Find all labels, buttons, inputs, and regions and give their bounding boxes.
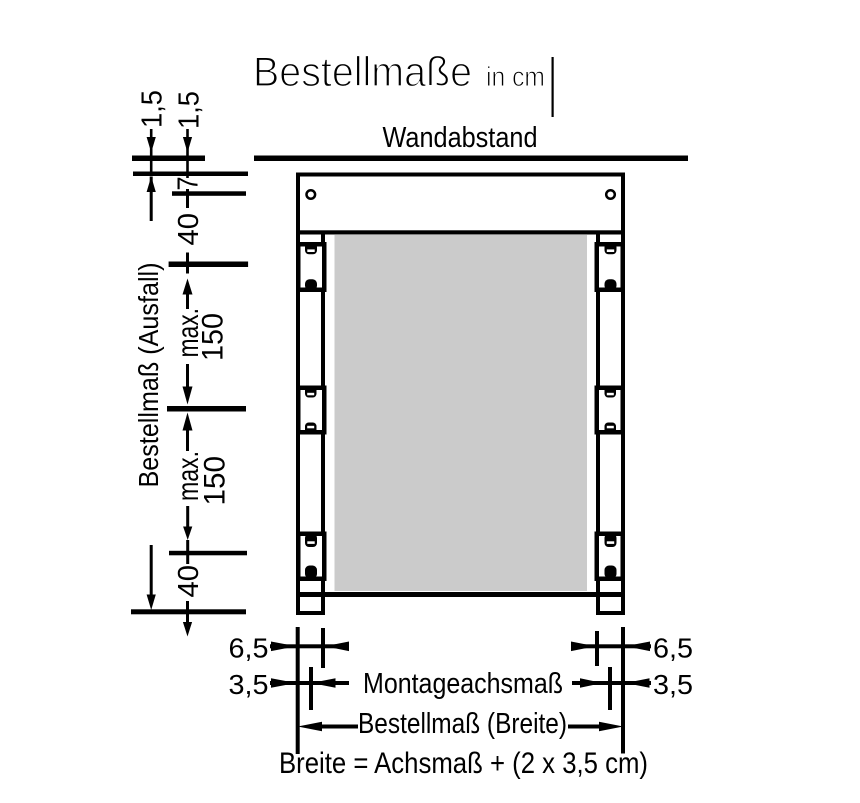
svg-text:40: 40 bbox=[173, 213, 205, 246]
svg-text:Bestellmaße: Bestellmaße bbox=[253, 48, 472, 95]
svg-text:3,5: 3,5 bbox=[229, 669, 269, 700]
svg-text:6,5: 6,5 bbox=[653, 633, 693, 664]
svg-text:Bestellmaß (Ausfall): Bestellmaß (Ausfall) bbox=[133, 263, 164, 488]
svg-text:40: 40 bbox=[173, 565, 205, 598]
svg-text:150: 150 bbox=[199, 456, 232, 506]
svg-text:Montageachsmaß: Montageachsmaß bbox=[363, 668, 563, 700]
svg-text:3,5: 3,5 bbox=[653, 669, 693, 700]
svg-text:1,5: 1,5 bbox=[174, 91, 206, 129]
svg-text:1,5: 1,5 bbox=[137, 90, 169, 128]
svg-text:Wandabstand: Wandabstand bbox=[383, 122, 538, 154]
svg-text:Bestellmaß (Breite): Bestellmaß (Breite) bbox=[358, 708, 567, 740]
svg-text:in cm: in cm bbox=[486, 61, 545, 92]
svg-text:7: 7 bbox=[173, 177, 205, 191]
svg-text:6,5: 6,5 bbox=[229, 633, 269, 664]
svg-text:150: 150 bbox=[197, 313, 230, 361]
svg-text:Breite = Achsmaß + (2 x 3,5 cm: Breite = Achsmaß + (2 x 3,5 cm) bbox=[279, 747, 648, 780]
